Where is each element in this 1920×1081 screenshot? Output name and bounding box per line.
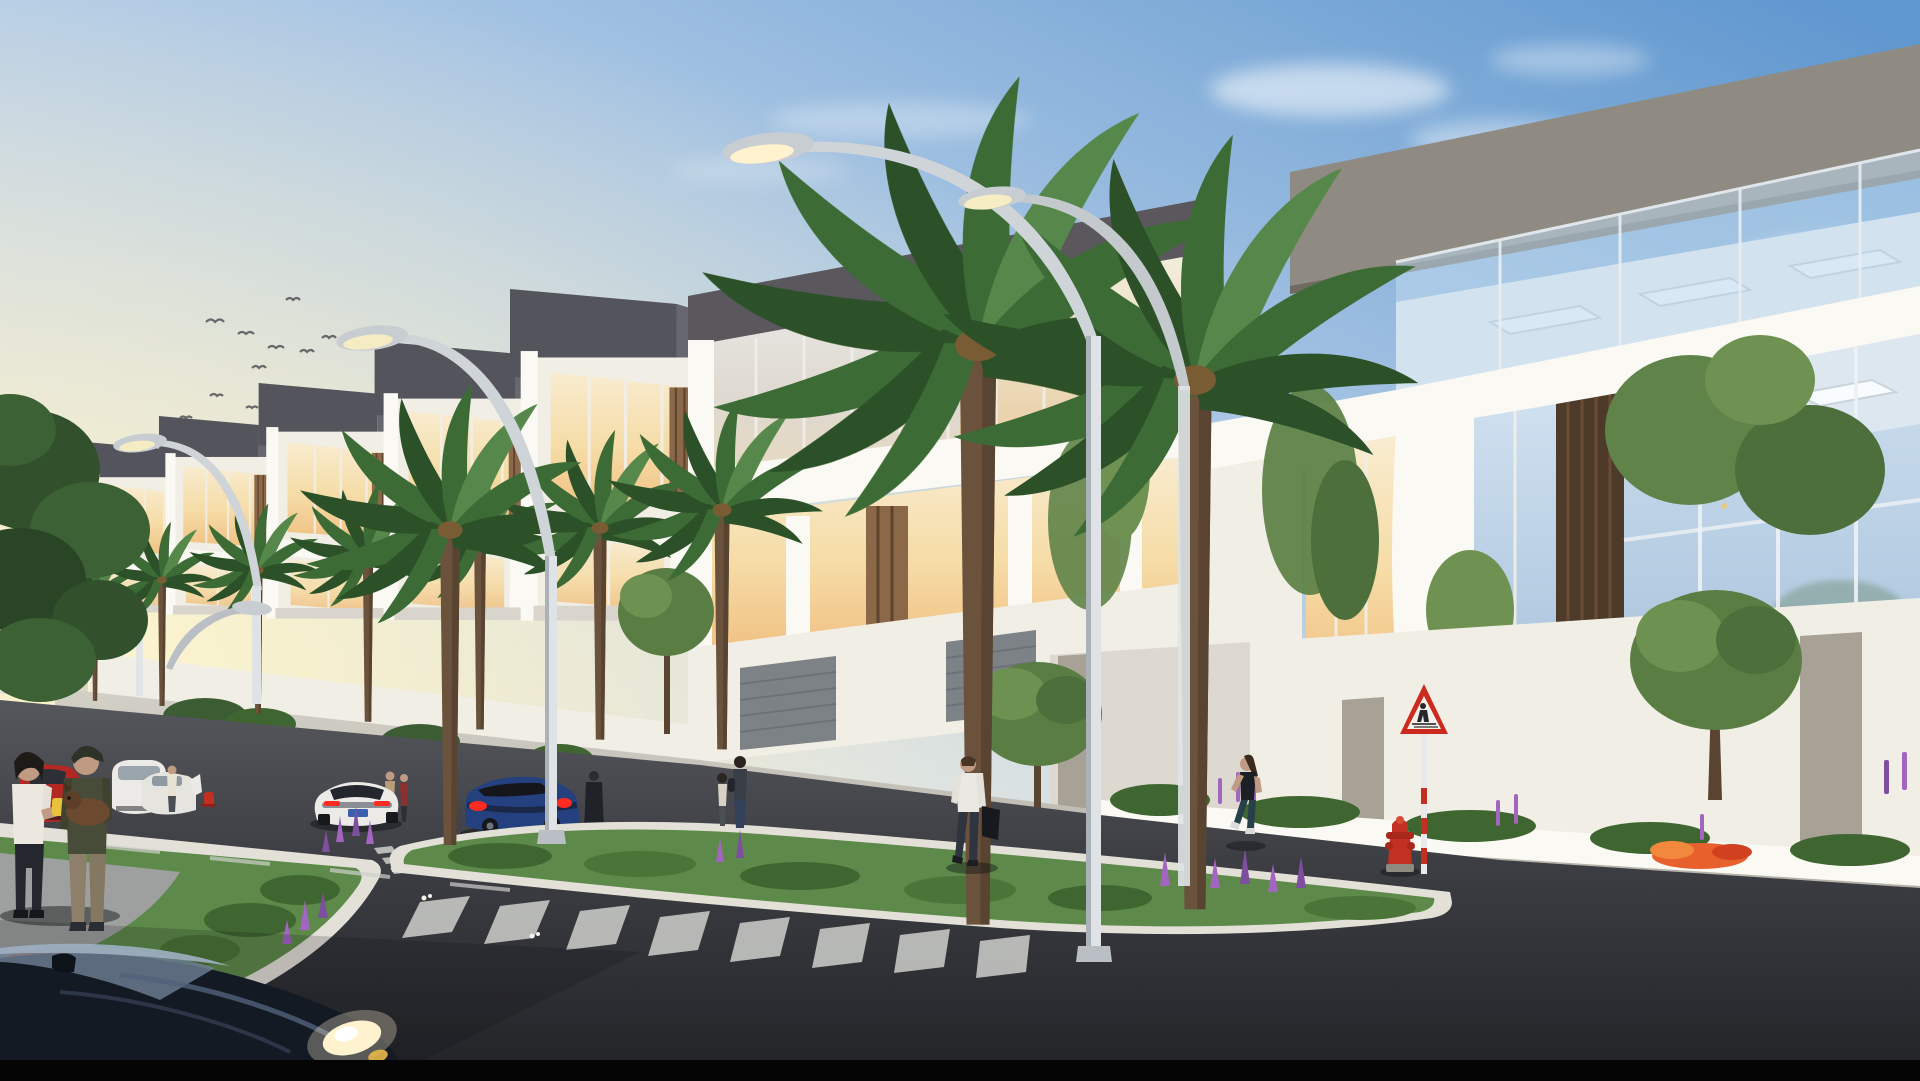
scene-canvas [0, 0, 1920, 1081]
sign-pole-stripes [1421, 788, 1427, 864]
garage-gate-center-1 [740, 656, 836, 750]
architectural-rendering [0, 0, 1920, 1081]
license-plate [348, 809, 368, 817]
duffel-bag [982, 806, 1000, 840]
bottom-letterbox-bar [0, 1060, 1920, 1081]
fire-hydrant-small [202, 792, 216, 807]
side-mirror [52, 953, 76, 972]
